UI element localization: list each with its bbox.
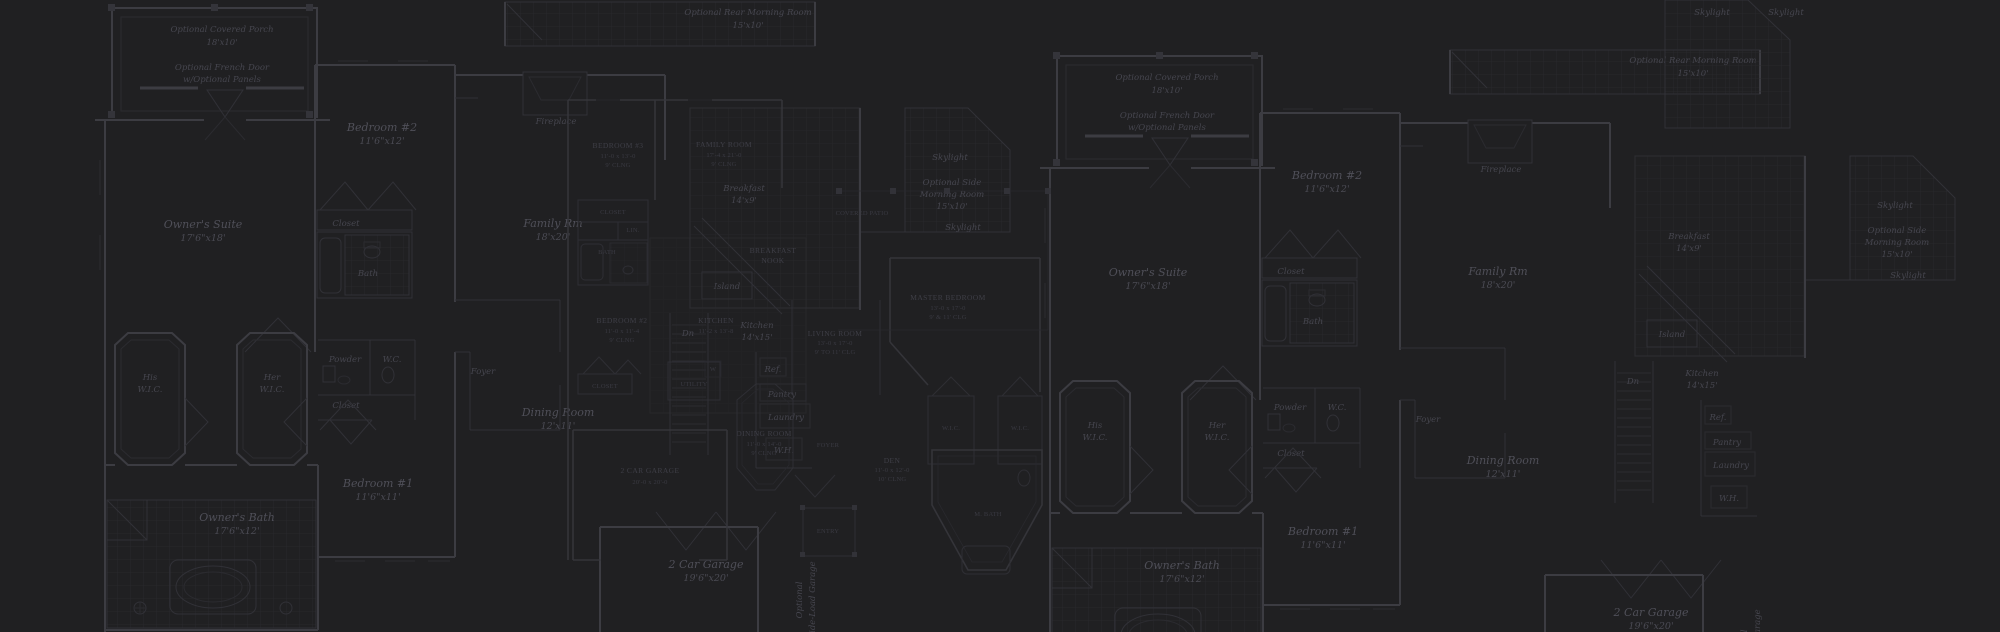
label-caps-wic-right: W.I.C. (1011, 425, 1029, 432)
label-skylight-tr-right: Skylight (1768, 8, 1804, 18)
label-caps-family: FAMILY ROOM (696, 140, 752, 149)
label-caps-entry: ENTRY (817, 528, 839, 535)
label-caps-bedroom3-dims: 11'-0 x 13'-0 (600, 153, 635, 160)
blueprint-canvas: Optional Covered Porch 18'x10' Optional … (0, 0, 2000, 632)
label-caps-closet: CLOSET (600, 209, 626, 216)
label-caps-garage-dims: 20'-0 x 20'-0 (632, 479, 667, 486)
label-caps-master: MASTER BEDROOM (910, 293, 985, 302)
label-caps-living-dims: 13'-0 x 17'-0 (817, 340, 852, 347)
label-skylight-tr-left: Skylight (1694, 8, 1730, 18)
label-caps-washer: W (710, 366, 717, 373)
label-caps-bedroom3-clg: 9' CLNG (605, 162, 630, 169)
label-caps-master-clg: 9' & 11' CLG (929, 314, 966, 321)
label-caps-garage: 2 CAR GARAGE (621, 466, 680, 475)
label-caps-bedroom2: BEDROOM #2 (597, 316, 648, 325)
blueprint-hero-background: Optional Covered Porch 18'x10' Optional … (0, 0, 2000, 632)
label-caps-patio: COVERED PATIO (836, 210, 889, 217)
label-caps-nook-2: NOOK (761, 256, 784, 265)
label-caps-dining-clg: 9' CLNG (751, 450, 776, 457)
label-caps-lin: LIN. (626, 227, 639, 234)
label-caps-utility: UTILITY (680, 381, 707, 388)
label-caps-kitchen: KITCHEN (698, 316, 734, 325)
label-caps-den-dims: 11'-0 x 12'-0 (874, 467, 909, 474)
label-caps-den-clg: 10' CLNG (878, 476, 907, 483)
label-caps-bath: BATH (598, 249, 616, 256)
label-caps-kitchen-dims: 11'-2 x 13'-8 (698, 328, 733, 335)
label-caps-bedroom2-clg: 9' CLNG (609, 337, 634, 344)
label-caps-bedroom2-dims: 11'-0 x 11'-4 (605, 328, 640, 335)
label-caps-nook-1: BREAKFAST (750, 246, 797, 255)
label-caps-living-clg: 9' TO 11' CLG (815, 349, 856, 356)
label-caps-bedroom3: BEDROOM #3 (593, 141, 644, 150)
label-caps-dining-dims: 11'-0 x 14'-0 (746, 441, 781, 448)
label-caps-den: DEN (884, 456, 901, 465)
label-caps-dining: DINING ROOM (736, 429, 791, 438)
label-caps-family-dims: 17'-4 x 21'-0 (706, 152, 741, 159)
label-caps-wic-left: W.I.C. (942, 425, 960, 432)
label-caps-closet2: CLOSET (592, 383, 618, 390)
label-caps-foyer: FOYER (817, 442, 840, 449)
label-caps-master-dims: 13'-0 x 17'-0 (930, 305, 965, 312)
caps-breakfast-kitchen: BREAKFAST NOOK KITCHEN 11'-2 x 13'-8 UTI… (650, 238, 806, 413)
label-caps-mbath: M. BATH (974, 511, 1002, 518)
label-caps-family-clg: 9' CLNG (711, 161, 736, 168)
